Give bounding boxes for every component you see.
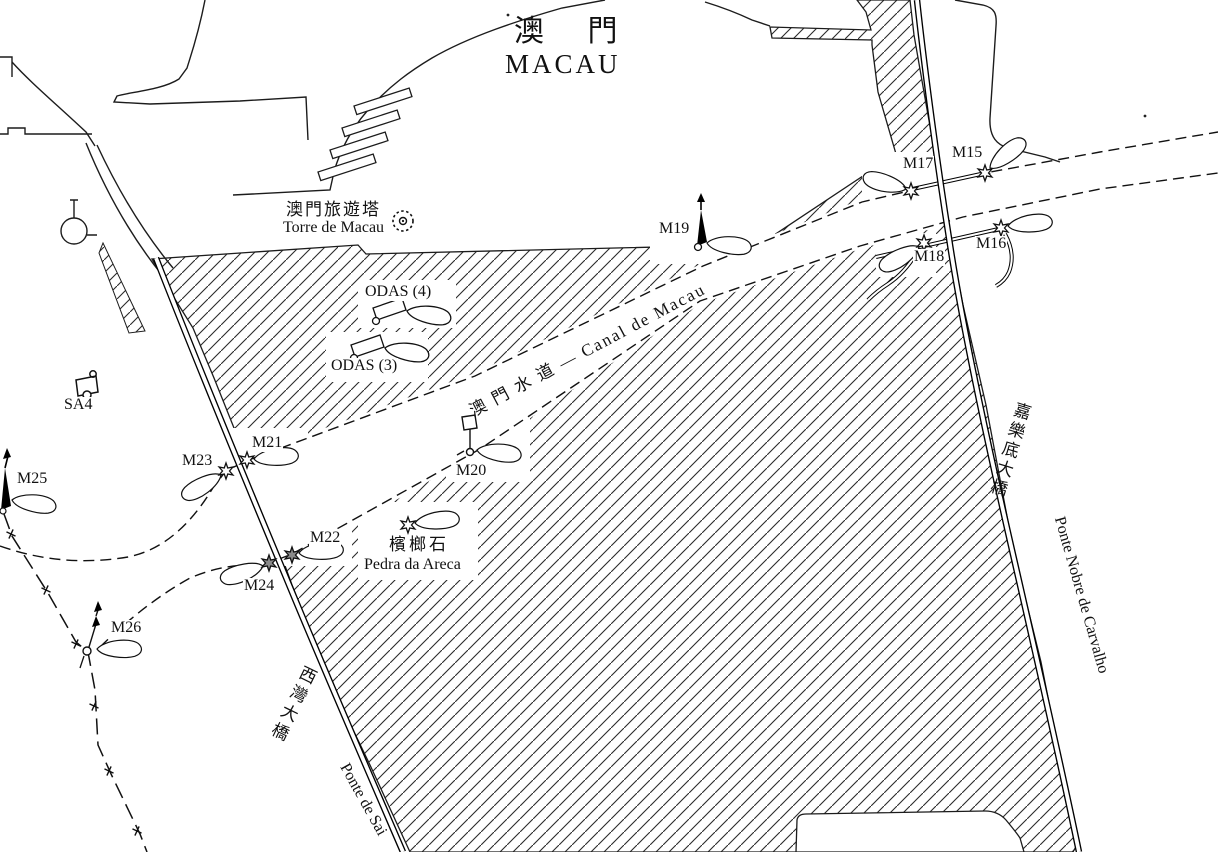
chart-title-en: MACAU [504,50,622,78]
m26-flare [97,639,142,658]
anchorage-sa4-label: SA4 [63,397,93,414]
anchorage-sa4-icon [76,371,98,399]
mark-label-m22: M22 [309,530,341,547]
mark-label-m17: M17 [902,156,934,173]
mark-label-m20: M20 [455,463,487,480]
nautical-chart-canvas[interactable]: 澳 門 MACAU 澳門旅遊塔 Torre de Macau ODAS (4) … [0,0,1218,852]
m23-flare [178,468,225,504]
tower-label-zh: 澳門旅遊塔 [285,201,382,219]
rock-label-en: Pedra da Areca [363,557,462,574]
m25-flare [11,490,58,516]
finger-piers [318,88,412,180]
mark-label-m24: M24 [243,578,275,595]
basin-notch [796,811,1024,852]
tower-label-en: Torre de Macau [282,220,385,237]
tower-icon [393,211,413,231]
mark-label-m26: M26 [110,620,142,637]
mark-label-m25: M25 [16,471,48,488]
mark-label-m21: M21 [251,435,283,452]
mark-label-m23: M23 [181,453,213,470]
m25-beacon-icon [0,448,11,514]
mark-label-m18: M18 [913,249,945,266]
odas3-label: ODAS (3) [330,358,398,375]
boundary-line [4,514,147,852]
odas4-label: ODAS (4) [364,284,432,301]
mark-label-m16: M16 [975,236,1007,253]
rock-label-zh: 檳榔石 [388,536,450,554]
chart-title-zh: 澳 門 [513,16,637,48]
mark-label-m15: M15 [951,145,983,162]
chart-geometry [0,0,1218,852]
mark-label-m19: M19 [658,221,690,238]
